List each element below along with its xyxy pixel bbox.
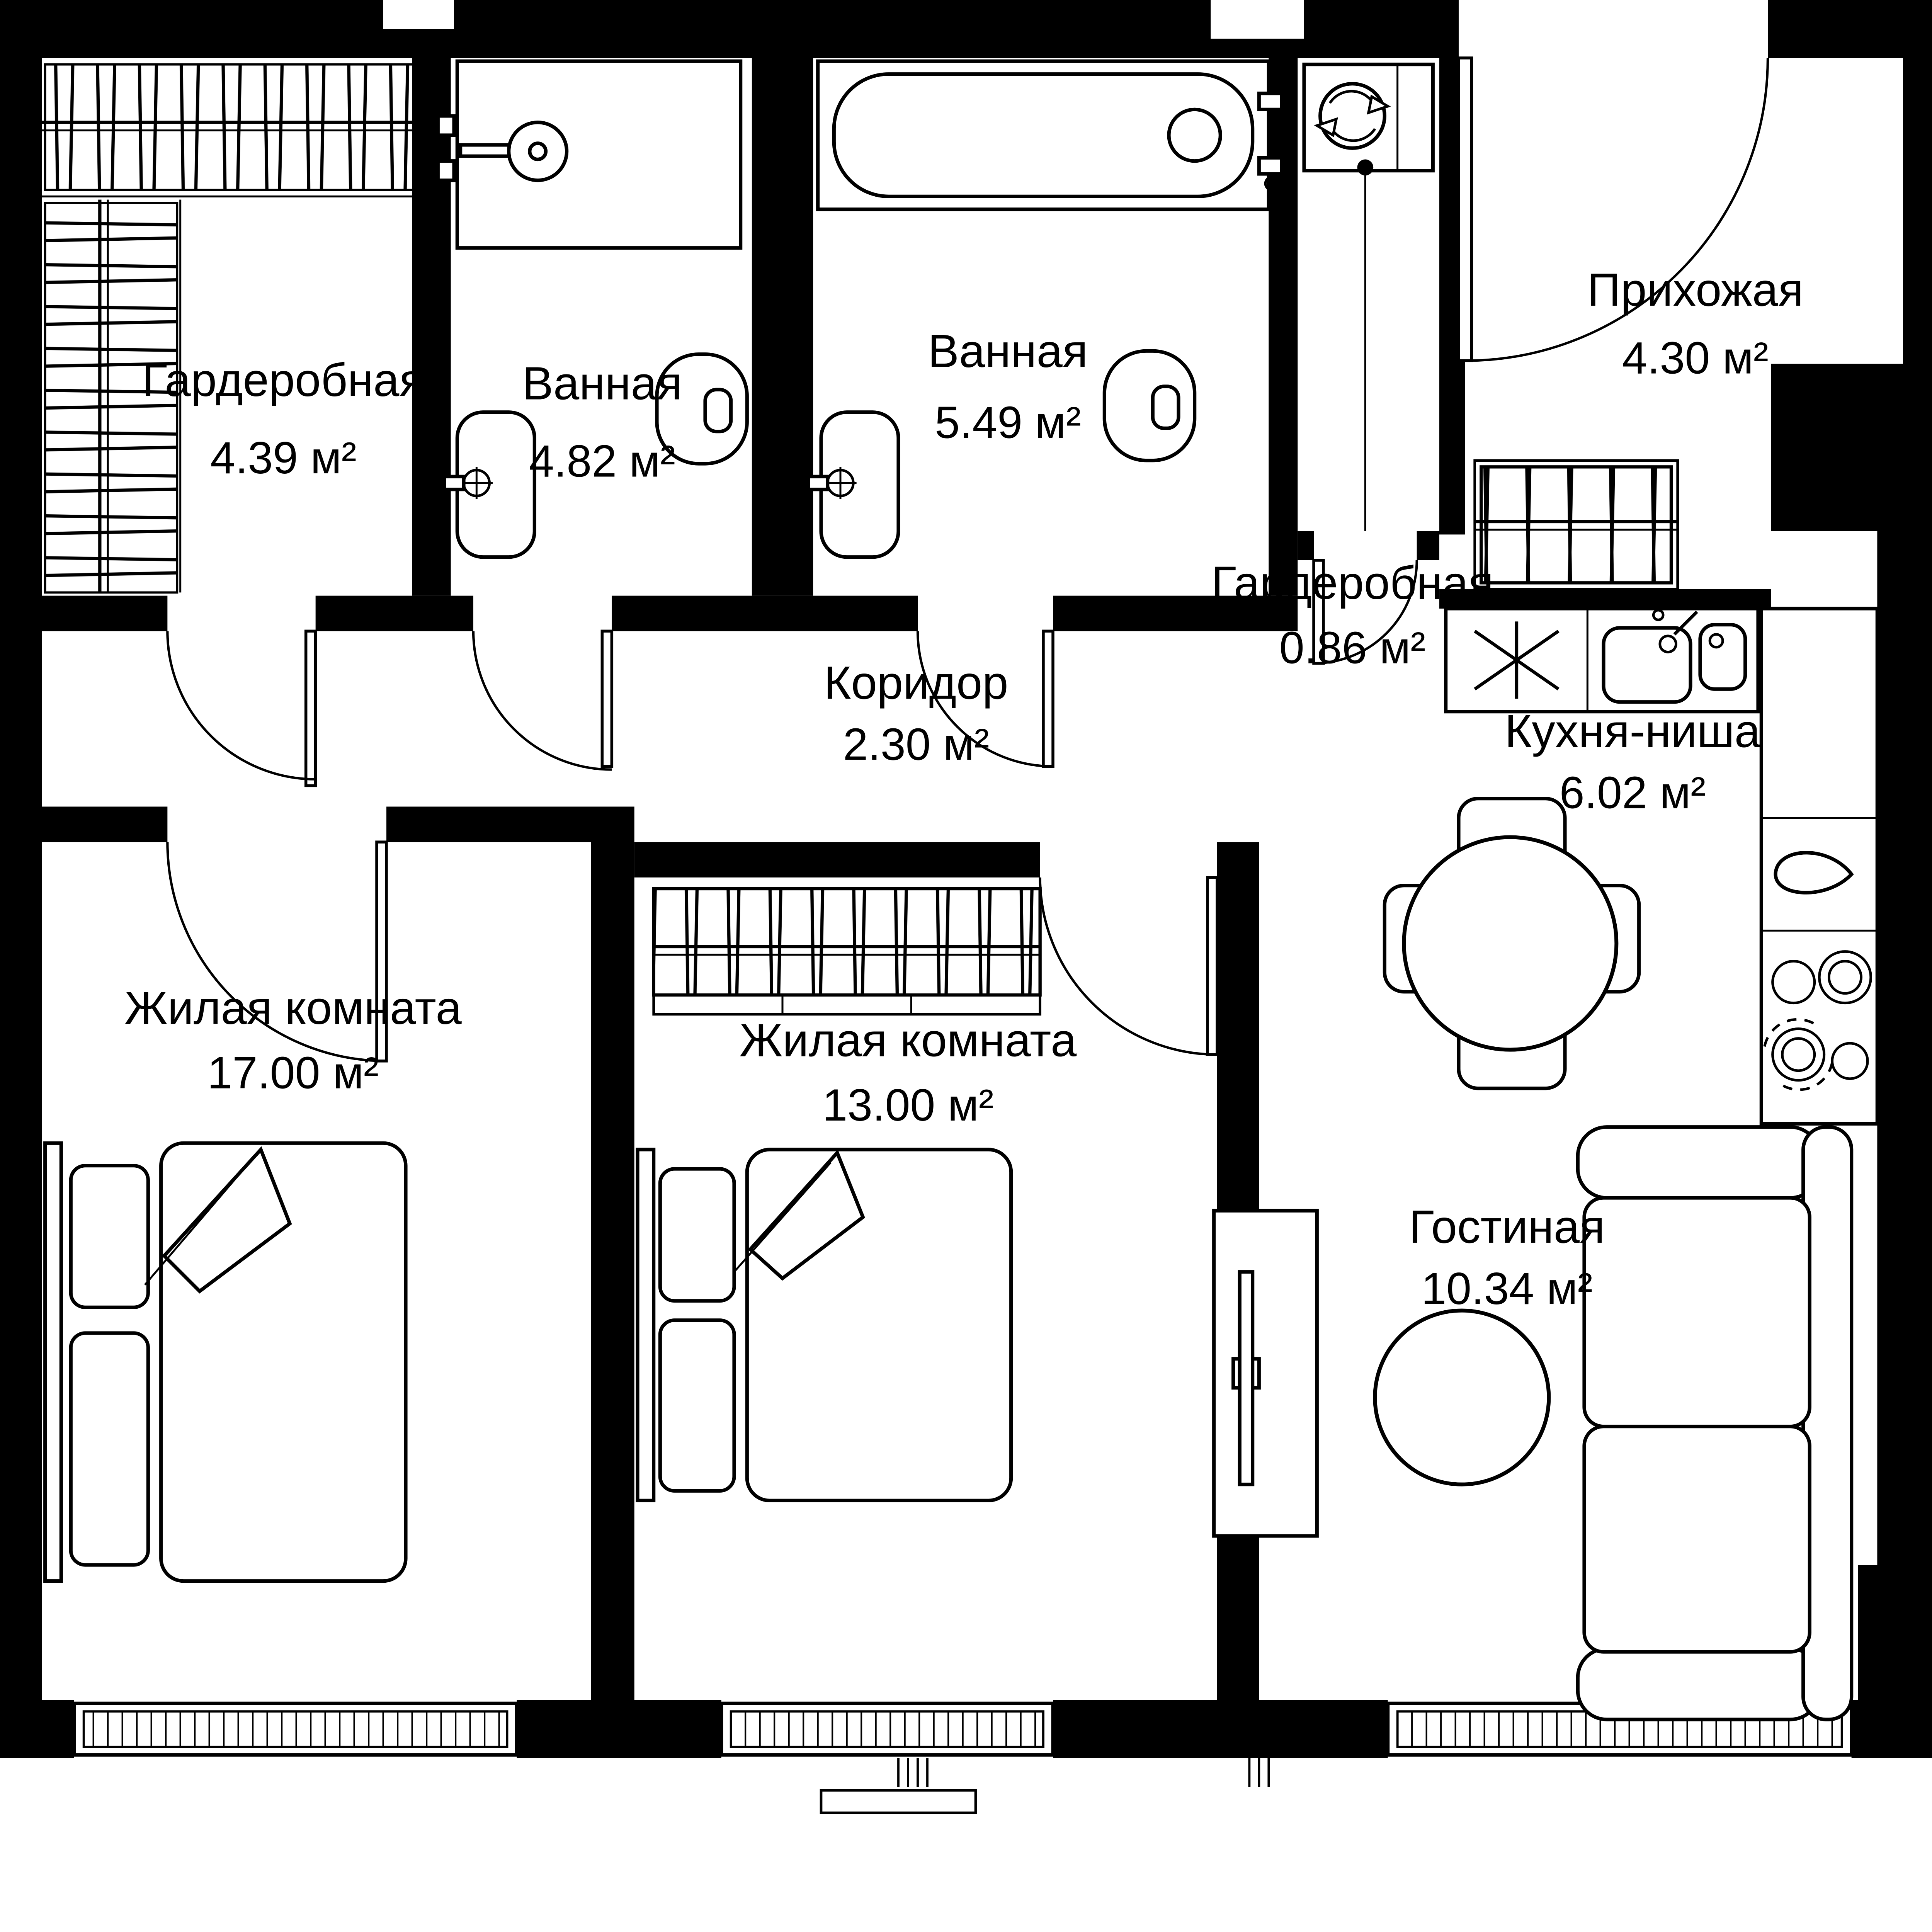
- wall-bath2-right: [1269, 58, 1298, 596]
- room-label-bathroom-2: Ванная: [928, 325, 1088, 377]
- floor-plan: Гардеробная 4.39 м² Ванная 4.82 м² Ванна…: [0, 0, 1932, 1819]
- room-area-wardrobe-main: 4.39 м²: [210, 432, 357, 483]
- wall-a: [316, 596, 473, 631]
- window-icon: [721, 1703, 1053, 1755]
- room-area-kitchen: 6.02 м²: [1560, 767, 1706, 818]
- toilet-icon: [1104, 351, 1194, 460]
- label-leader-dot: [1357, 159, 1373, 175]
- wardrobe-entry-fixtures: [1304, 65, 1433, 531]
- room-label-corridor: Коридор: [824, 656, 1008, 709]
- room-label-kitchen: Кухня-ниша: [1505, 705, 1761, 757]
- dining-table-icon: [1404, 837, 1616, 1050]
- room-area-bathroom-1: 4.82 м²: [529, 435, 675, 486]
- wall-bottom: [1053, 1700, 1388, 1758]
- bedroom-2-furniture: [638, 1150, 1011, 1500]
- room-area-bedroom-1: 17.00 м²: [207, 1048, 379, 1098]
- wall-bedroom2-top: [634, 842, 1040, 878]
- room-area-living-room: 10.34 м²: [1421, 1263, 1592, 1314]
- room-area-bedroom-2: 13.00 м²: [822, 1080, 993, 1130]
- wall-bedroom-divider: [591, 806, 634, 1700]
- wall-corridor-bottom: [386, 806, 596, 842]
- shower-icon: [438, 61, 740, 248]
- sink-icon: [808, 412, 898, 557]
- door-swing-icon-wardrobe-main: [167, 631, 315, 786]
- double-bed-icon: [145, 1143, 406, 1581]
- room-label-bedroom-1: Жилая комната: [124, 982, 462, 1034]
- window-icon: [74, 1703, 517, 1755]
- bedroom-1-furniture: [45, 1143, 406, 1581]
- nightstand-icon: [71, 1333, 148, 1565]
- wall-a: [612, 596, 918, 631]
- bed-headboard: [45, 1143, 61, 1581]
- nightstand-icon: [660, 1320, 734, 1491]
- nightstand-icon: [660, 1169, 734, 1301]
- sink-icon: [444, 412, 534, 557]
- room-area-corridor: 2.30 м²: [843, 719, 990, 770]
- wall-a: [42, 596, 167, 631]
- wall-bottom: [0, 1700, 74, 1758]
- wall-stub: [1417, 531, 1439, 560]
- coffee-table-icon: [1375, 1311, 1549, 1485]
- double-bed-icon: [734, 1150, 1011, 1500]
- wall-niche: [383, 0, 454, 29]
- hanger-rack-icon-bedroom-2: [654, 889, 1040, 1014]
- hanger-rack-icon-wardrobe-top: [42, 65, 428, 197]
- wall-left: [0, 0, 42, 1758]
- bed-headboard: [638, 1150, 654, 1500]
- wall-right: [1877, 531, 1932, 1700]
- dining-set: [1384, 799, 1639, 1088]
- hanger-rack-icon-hallway: [1475, 461, 1678, 589]
- tv-stand-icon: [1214, 1211, 1317, 1536]
- room-label-bathroom-1: Ванная: [522, 357, 682, 409]
- sofa-icon: [1578, 1127, 1851, 1719]
- kitchen-fixtures: [1384, 609, 1877, 1124]
- room-label-hallway: Прихожая: [1587, 264, 1804, 316]
- room-area-bathroom-2: 5.49 м²: [935, 397, 1081, 447]
- windows: [74, 1703, 1852, 1813]
- room-area-hallway: 4.30 м²: [1622, 333, 1769, 383]
- room-label-wardrobe-main: Гардеробная: [142, 354, 425, 406]
- wall-bottom: [1852, 1700, 1932, 1758]
- wall-bottom: [517, 1700, 721, 1758]
- door-swing-icon-bathroom-1: [473, 631, 612, 769]
- room-label-bedroom-2: Жилая комната: [740, 1014, 1077, 1066]
- wall-stub: [1298, 531, 1314, 560]
- floor-plan-page: Гардеробная 4.39 м² Ванная 4.82 м² Ванна…: [0, 0, 1932, 1819]
- wall-entry-step: [1771, 364, 1932, 531]
- room-label-wardrobe-entry: Гардеробная: [1211, 557, 1494, 609]
- room-label-living-room: Гостиная: [1409, 1201, 1605, 1253]
- wall-corridor-bottom: [42, 806, 167, 842]
- washing-machine-icon: [1304, 65, 1433, 171]
- wall-shaft: [752, 58, 813, 596]
- room-area-wardrobe-entry: 0.86 м²: [1279, 622, 1426, 673]
- bathtub-icon: [818, 61, 1282, 209]
- facade-detail: [821, 1790, 976, 1813]
- nightstand-icon: [71, 1166, 148, 1308]
- facade-hatch: [898, 1758, 1269, 1787]
- bathroom-2-fixtures: [808, 61, 1282, 557]
- wall-niche: [1211, 0, 1304, 39]
